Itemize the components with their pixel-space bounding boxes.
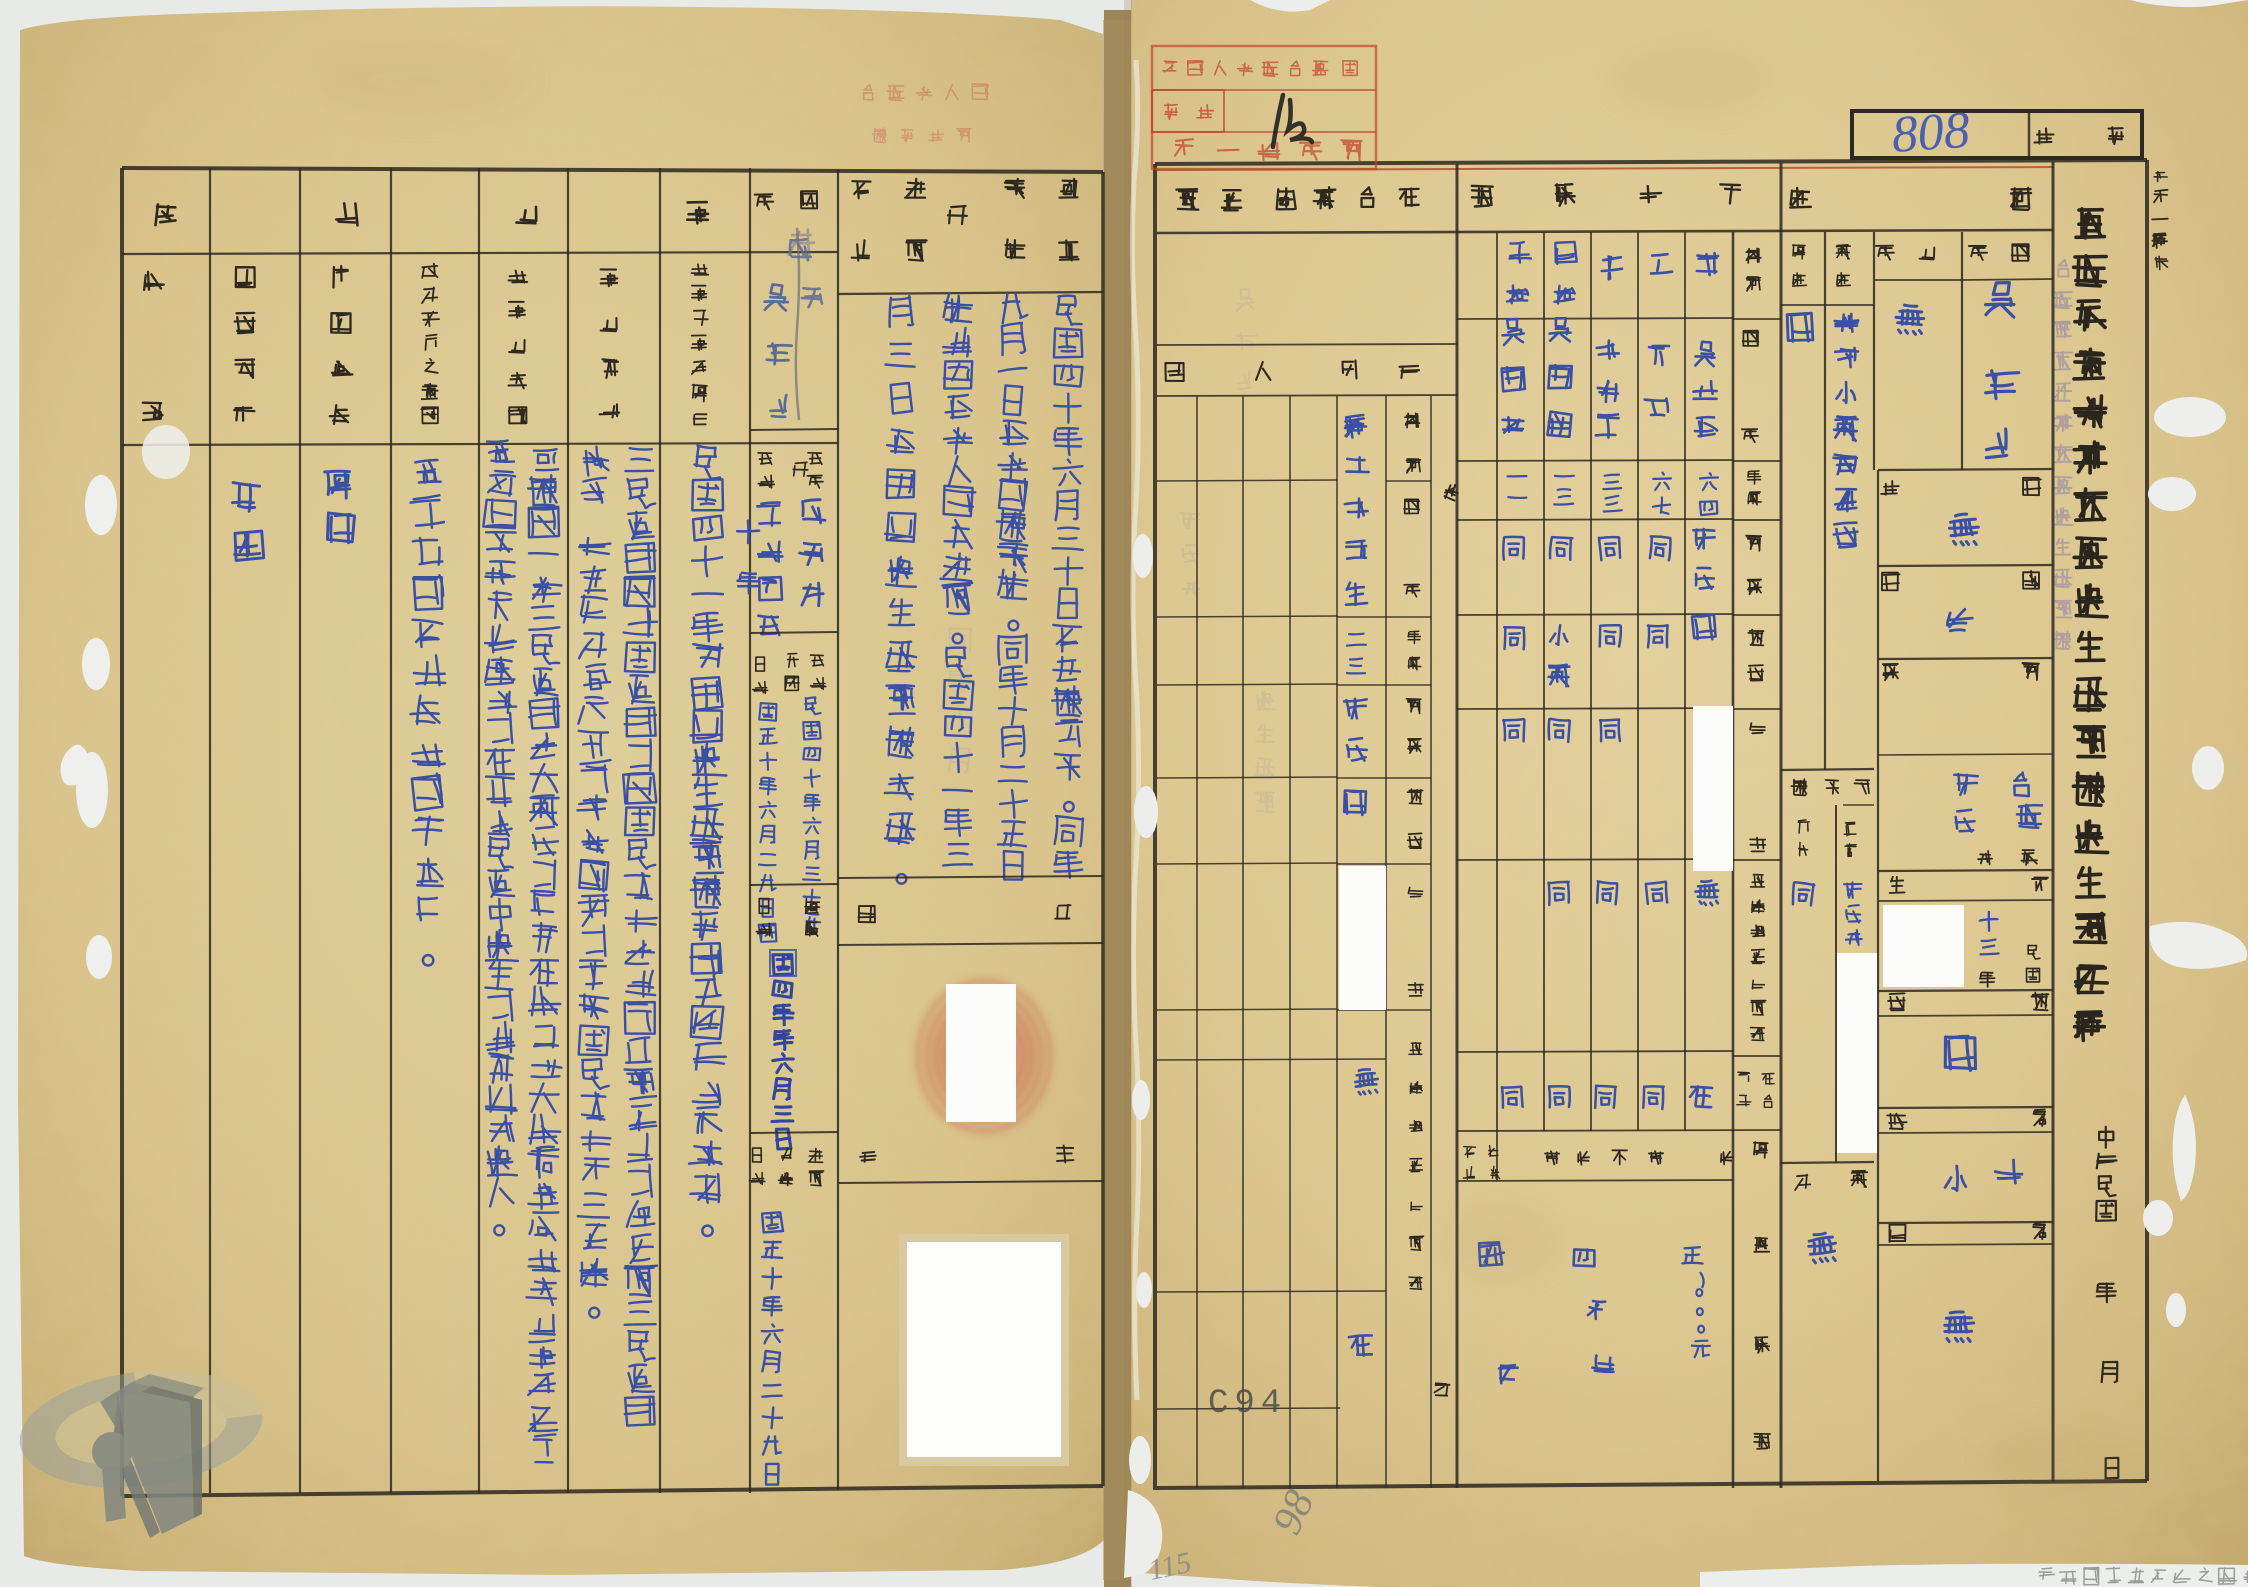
svg-text:C94: C94 [1208,1385,1287,1423]
svg-text:808: 808 [1890,102,1972,164]
